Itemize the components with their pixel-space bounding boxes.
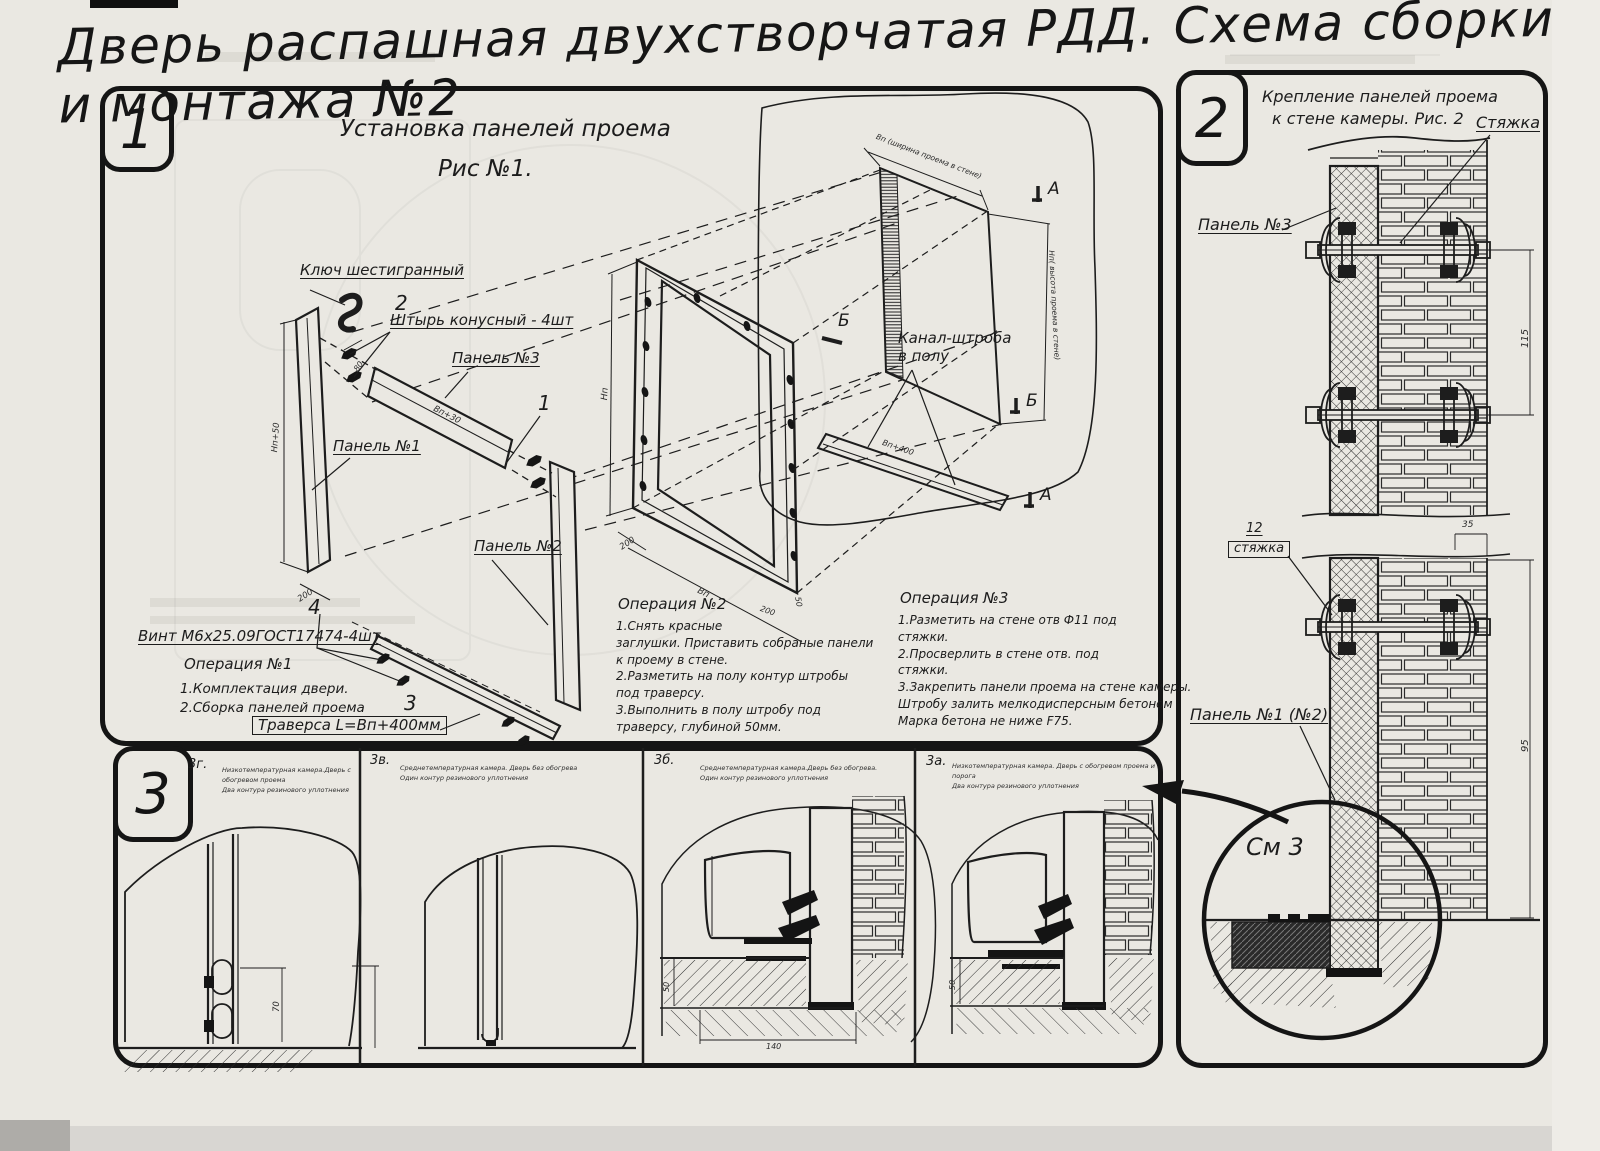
dim-np50: Нп+50 — [270, 422, 282, 453]
operation2-body: 1.Снять красные заглушки. Приставить соб… — [616, 618, 873, 736]
operation3-body: 1.Разметить на стене отв Ф11 под стяжки.… — [898, 612, 1191, 730]
fig1-title-line2: Рис №1. — [438, 156, 533, 182]
callout-1: 1 — [538, 392, 551, 415]
subsection-3v-caption: Среднетемпературная камера. Дверь без об… — [400, 764, 580, 784]
operation1-title: Операция №1 — [184, 656, 292, 673]
label-hex-key: Ключ шестигранный — [300, 262, 464, 279]
callout-4: 4 — [308, 596, 321, 619]
dim-35: 35 — [1462, 520, 1473, 530]
fig2-title-line2: к стене камеры. Рис. 2 — [1272, 110, 1464, 128]
subsection-3a-caption: Низкотемпературная камера. Дверь с обогр… — [952, 762, 1157, 791]
section-marker-b-frame: Б — [838, 312, 850, 332]
label-pin: Штырь конусный - 4шт — [390, 312, 573, 329]
dim-np-frame: Нп — [600, 387, 611, 400]
scan-edge-right — [1552, 0, 1600, 1151]
label-screw: Винт М6х25.09ГОСТ17474-4шт — [138, 628, 381, 645]
scan-band-bottom — [0, 1126, 1600, 1151]
section-marker-a-top: А — [1048, 180, 1060, 200]
operation2-title: Операция №2 — [618, 596, 726, 613]
dim-50-c: 50 — [793, 596, 804, 608]
label-tie: Стяжка — [1476, 114, 1540, 132]
section-marker-a-low: А — [1040, 486, 1052, 506]
section3-badge: 3 — [113, 746, 193, 842]
label-panel2: Панель №2 — [474, 538, 562, 555]
label-traverse: Траверса L=Вп+400мм — [252, 716, 447, 735]
label-panel3: Панель №3 — [452, 350, 540, 367]
fig2-title-line1: Крепление панелей проема — [1262, 88, 1498, 106]
operation1-body: 1.Комплектация двери. 2.Сборка панелей п… — [180, 680, 365, 718]
label-panel1: Панель №1 — [333, 438, 421, 455]
dim-50-3a: 50 — [948, 980, 957, 990]
callout-3: 3 — [404, 692, 417, 715]
dim-70: 70 — [272, 1001, 282, 1012]
label-tie-number: 12 — [1246, 522, 1263, 537]
section-marker-b-low: Б — [1026, 392, 1038, 412]
dim-140: 140 — [766, 1042, 781, 1051]
label-tie-word: стяжка — [1228, 541, 1290, 558]
label-panel3-fig2: Панель №3 — [1198, 216, 1292, 234]
dim-115: 115 — [1520, 329, 1531, 348]
subsection-3v-id: 3в. — [370, 754, 390, 769]
scan-corner-bottom-left — [0, 1120, 70, 1151]
subsection-3b-caption: Среднетемпературная камера.Дверь без обо… — [700, 764, 900, 784]
label-channel-line1: Канал-штроба — [898, 330, 1011, 347]
label-channel-line2: в полу — [898, 348, 949, 365]
subsection-3g-id: 3г. — [188, 758, 207, 773]
label-panel12: Панель №1 (№2) — [1190, 706, 1328, 724]
subsection-3b-id: 3б. — [654, 754, 674, 769]
dim-50-3b: 50 — [662, 982, 671, 992]
scanned-assembly-drawing: { "page": { "title": "Дверь распашная дв… — [0, 0, 1600, 1151]
subsection-3g-caption: Низкотемпературная камера.Дверь с обогре… — [222, 766, 372, 795]
fig1-title-line1: Установка панелей проема — [340, 116, 671, 142]
dim-95: 95 — [1520, 739, 1531, 752]
label-see3: См 3 — [1246, 834, 1304, 862]
scan-mark-top — [90, 0, 178, 8]
section3-badge-number: 3 — [135, 762, 171, 827]
subsection-3a-id: 3а. — [926, 755, 946, 770]
operation3-title: Операция №3 — [900, 590, 1008, 607]
